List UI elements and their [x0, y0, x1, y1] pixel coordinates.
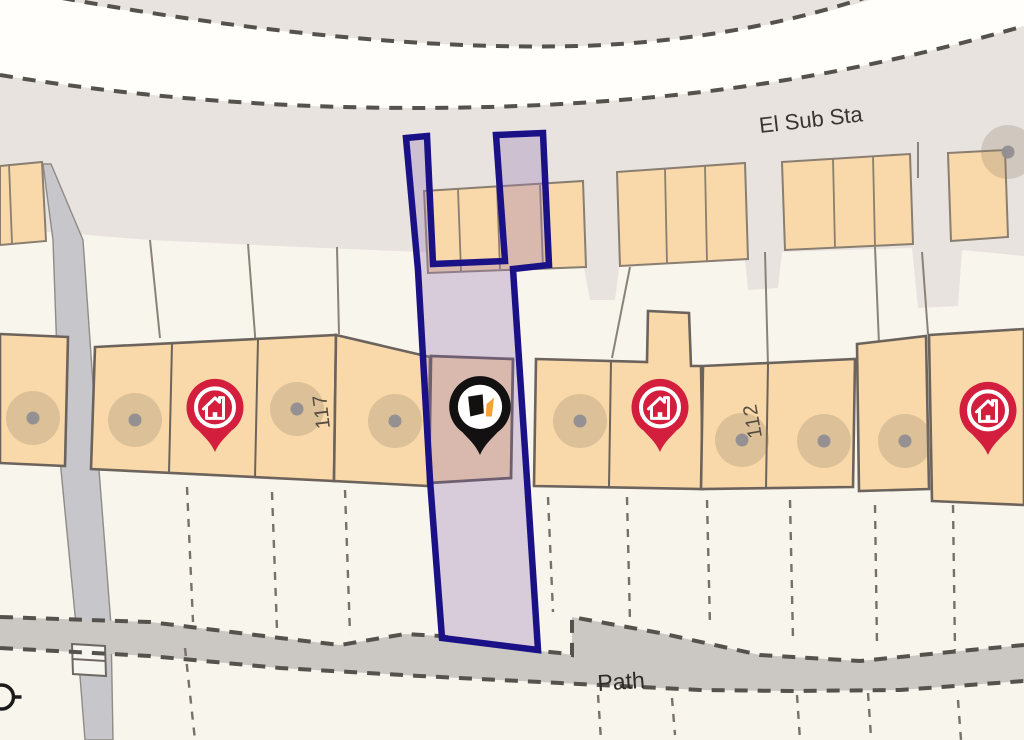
address-dot — [368, 394, 422, 448]
address-dot — [797, 414, 851, 468]
footbridge-structure — [72, 644, 106, 676]
address-dot — [108, 393, 162, 447]
address-dot — [553, 394, 607, 448]
address-dot — [878, 414, 932, 468]
map-svg[interactable]: 117 112 El Sub Sta Path — [0, 0, 1024, 740]
footpath-label: Path — [597, 667, 646, 696]
map-canvas[interactable]: 117 112 El Sub Sta Path — [0, 0, 1024, 740]
address-dot — [6, 391, 60, 445]
house-number-117: 117 — [309, 393, 335, 430]
